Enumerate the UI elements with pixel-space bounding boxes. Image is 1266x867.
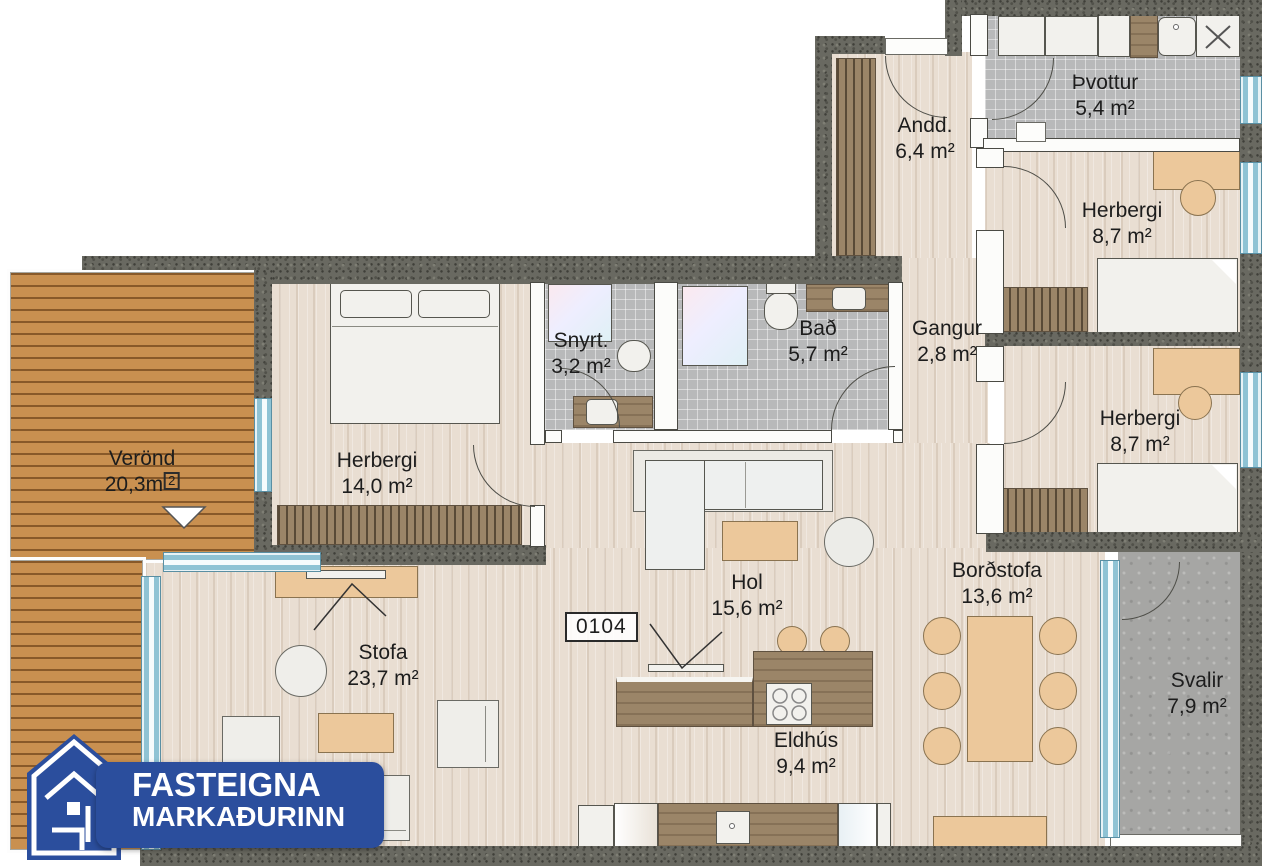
room-label-bad: Bað 5,7 m²: [788, 316, 848, 368]
shaft-box: [1016, 122, 1046, 142]
room-area: 6,4 m²: [895, 139, 955, 165]
room-name: Snyrt.: [551, 328, 611, 354]
floor-plan: Andd. 6,4 m² Þvottur 5,4 m² Herbergi 8,7…: [0, 0, 1266, 867]
dining-chair: [1039, 617, 1077, 655]
dining-chair: [1039, 727, 1077, 765]
laundry-counter: [1130, 15, 1158, 58]
room-label-thvottur: Þvottur 5,4 m²: [1072, 70, 1139, 122]
room-area: 8,7 m²: [1100, 432, 1181, 458]
window-bedroom-w: [254, 398, 272, 492]
armchair: [437, 700, 499, 768]
window-laundry: [1240, 76, 1262, 124]
pillow: [340, 290, 412, 318]
entrance-door-sill: [885, 38, 948, 55]
pouf: [824, 517, 874, 567]
toilet: [617, 340, 651, 372]
armchair-seat-line: [485, 706, 486, 762]
wash-basin: [832, 287, 866, 310]
washer-x-icon: [1200, 18, 1236, 54]
wall-bedrooms-divider: [985, 332, 1240, 346]
coffee-table: [318, 713, 394, 753]
partition-bath-bottom-c: [893, 430, 903, 443]
balcony-sill: [1110, 834, 1242, 847]
sofa-back-line: [340, 830, 406, 831]
tv-chevron-icon: [648, 622, 724, 672]
room-label-stofa: Stofa 23,7 m²: [347, 640, 418, 692]
desk-chair: [1180, 180, 1216, 216]
partition-wc-bath: [654, 282, 678, 430]
room-label-eldhus: Eldhús 9,4 m²: [774, 728, 838, 780]
dining-chair: [1039, 672, 1077, 710]
faucet-dot: [729, 823, 735, 829]
room-area: 7,9 m²: [1167, 694, 1227, 720]
partition-wc-bottom-a: [545, 430, 562, 443]
laundry-sink: [1158, 17, 1196, 56]
room-label-svalir: Svalir 7,9 m²: [1167, 668, 1227, 720]
room-name: Svalir: [1167, 668, 1227, 694]
window-bedroom-e: [1240, 372, 1262, 468]
room-area: 14,0 m²: [337, 474, 418, 500]
tall-cabinet: [1098, 15, 1130, 57]
counter-end: [877, 803, 891, 848]
room-area: 13,6 m²: [952, 584, 1042, 610]
window-living-west: [141, 576, 161, 850]
wall-bedroome-dining: [986, 532, 1262, 552]
window-living-north: [163, 552, 321, 572]
unit-number-badge: 0104: [565, 612, 638, 642]
veranda-deck-lower: [10, 560, 143, 850]
fridge: [614, 803, 658, 848]
sofa: [336, 775, 410, 841]
room-area: 9,4 m²: [774, 754, 838, 780]
dishwasher: [838, 803, 877, 848]
room-label-herbergi-ne: Herbergi 8,7 m²: [1082, 198, 1163, 250]
room-name: Bað: [788, 316, 848, 342]
room-name: Herbergi: [1100, 406, 1181, 432]
cabinet: [1045, 16, 1098, 56]
cabinet: [998, 16, 1045, 56]
partition-wc-bottom-b: [613, 430, 832, 443]
wardrobe: [998, 488, 1088, 533]
tv-chevron-icon: [312, 582, 388, 634]
room-label-andd: Andd. 6,4 m²: [895, 113, 955, 165]
room-area: 2,8 m²: [912, 342, 982, 368]
area-superscript: 2: [164, 472, 179, 490]
room-name: Herbergi: [1082, 198, 1163, 224]
room-name: Gangur: [912, 316, 982, 342]
room-area: 3,2 m²: [551, 354, 611, 380]
wall-veranda-side-upper: [254, 270, 272, 400]
partition-bedroomw-b: [530, 505, 545, 547]
room-label-herbergi-e: Herbergi 8,7 m²: [1100, 406, 1181, 458]
room-area: 23,7 m²: [347, 666, 418, 692]
bed-fold-corner: [1212, 260, 1236, 284]
room-label-bordstofa: Borðstofa 13,6 m²: [952, 558, 1042, 610]
room-name: Hol: [711, 570, 782, 596]
room-label-verond: Verönd 20,3m2: [105, 446, 180, 498]
wardrobe: [1000, 287, 1088, 332]
sideboard: [933, 816, 1047, 848]
room-name: Eldhús: [774, 728, 838, 754]
partition-corridor-d: [976, 444, 1004, 534]
kitchen-island-left: [616, 677, 753, 727]
wall-top-main: [256, 256, 902, 284]
sofa-chaise: [645, 460, 705, 570]
side-table: [222, 716, 280, 768]
veranda-deck-upper: [10, 272, 256, 560]
room-label-gangur: Gangur 2,8 m²: [912, 316, 982, 368]
partition-corridor-a: [976, 148, 1004, 168]
room-name: Herbergi: [337, 448, 418, 474]
window-balcony-door: [1100, 560, 1120, 838]
shower: [682, 286, 748, 366]
bed-fold-corner: [1212, 465, 1236, 489]
window-bedroom-ne: [1240, 162, 1262, 254]
wall-west-upper-block: [815, 36, 832, 282]
dining-chair: [923, 672, 961, 710]
dining-chair: [923, 727, 961, 765]
partition-entry-laundry-a: [970, 14, 988, 56]
room-name: Þvottur: [1072, 70, 1139, 96]
round-rug: [275, 645, 327, 697]
toilet-tank: [766, 283, 796, 294]
sofa-cushion-line: [745, 462, 746, 508]
closet: [277, 505, 522, 545]
coffee-table: [722, 521, 798, 561]
stove-burners-icon: [768, 685, 810, 723]
tall-cabinet: [578, 805, 614, 847]
bed-line: [332, 326, 498, 327]
wardrobe: [836, 58, 876, 256]
room-name: Andd.: [895, 113, 955, 139]
room-area: 8,7 m²: [1082, 224, 1163, 250]
room-label-snyrt: Snyrt. 3,2 m²: [551, 328, 611, 380]
partition-bedroomw-a: [530, 282, 545, 445]
room-label-hol: Hol 15,6 m²: [711, 570, 782, 622]
room-area: 15,6 m²: [711, 596, 782, 622]
wall-right-balcony: [1240, 548, 1262, 866]
room-area: 20,3m2: [105, 472, 180, 498]
wall-top-ne: [955, 0, 1245, 16]
room-name: Stofa: [347, 640, 418, 666]
wall-bottom: [140, 846, 1262, 866]
faucet-dot: [1173, 24, 1179, 30]
dining-table: [967, 616, 1033, 762]
room-name: Borðstofa: [952, 558, 1042, 584]
dining-chair: [923, 617, 961, 655]
room-name: Verönd: [105, 446, 180, 472]
desk-chair: [1178, 386, 1212, 420]
room-area: 5,4 m²: [1072, 96, 1139, 122]
room-area: 5,7 m²: [788, 342, 848, 368]
room-label-herbergi-w: Herbergi 14,0 m²: [337, 448, 418, 500]
pillow: [418, 290, 490, 318]
wall-top-veranda: [82, 256, 258, 270]
veranda-door-marker-icon: [162, 506, 206, 530]
